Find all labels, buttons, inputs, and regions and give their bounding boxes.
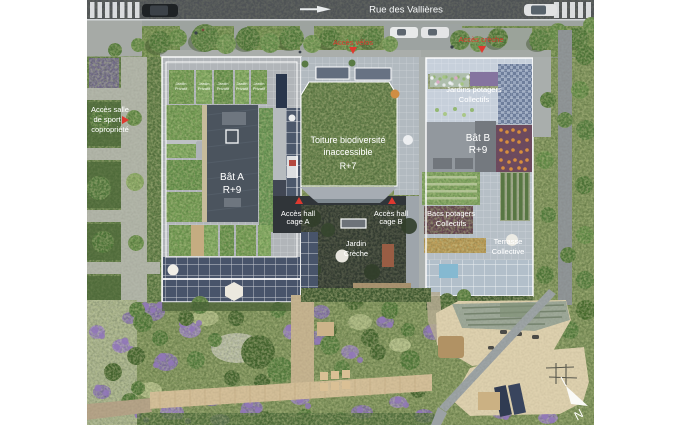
svg-text:de sport: de sport [93, 115, 121, 124]
svg-text:Crèche: Crèche [344, 249, 368, 258]
svg-text:Jardins potagers: Jardins potagers [446, 85, 502, 94]
svg-text:Bât B: Bât B [466, 133, 491, 144]
svg-text:Collectifs: Collectifs [436, 219, 467, 228]
svg-text:R+9: R+9 [469, 145, 488, 156]
svg-text:cage A: cage A [287, 217, 310, 226]
svg-text:copropriété: copropriété [91, 125, 129, 134]
svg-text:Accès crèche: Accès crèche [458, 35, 503, 44]
svg-text:Privatif: Privatif [253, 86, 266, 91]
svg-text:Toiture biodiversité: Toiture biodiversité [310, 135, 385, 145]
svg-text:Collective: Collective [492, 247, 525, 256]
svg-text:Privatif: Privatif [175, 86, 188, 91]
svg-text:Privatif: Privatif [198, 86, 211, 91]
svg-text:Jardin: Jardin [346, 239, 366, 248]
svg-text:R+7: R+7 [340, 161, 357, 171]
svg-text:inaccessible: inaccessible [323, 147, 372, 157]
svg-text:Bât A: Bât A [220, 172, 244, 183]
svg-text:Privatif: Privatif [236, 86, 249, 91]
svg-text:Bacs potagers: Bacs potagers [427, 209, 475, 218]
svg-text:Terrasse: Terrasse [494, 237, 523, 246]
svg-text:Collectifs: Collectifs [459, 95, 490, 104]
svg-text:Accès salle: Accès salle [91, 105, 129, 114]
svg-text:Accès vélos: Accès vélos [333, 38, 373, 47]
svg-text:cage B: cage B [379, 217, 402, 226]
svg-text:R+9: R+9 [223, 185, 242, 196]
svg-text:Rue des Vallières: Rue des Vallières [369, 5, 443, 16]
svg-text:Privatif: Privatif [217, 86, 230, 91]
